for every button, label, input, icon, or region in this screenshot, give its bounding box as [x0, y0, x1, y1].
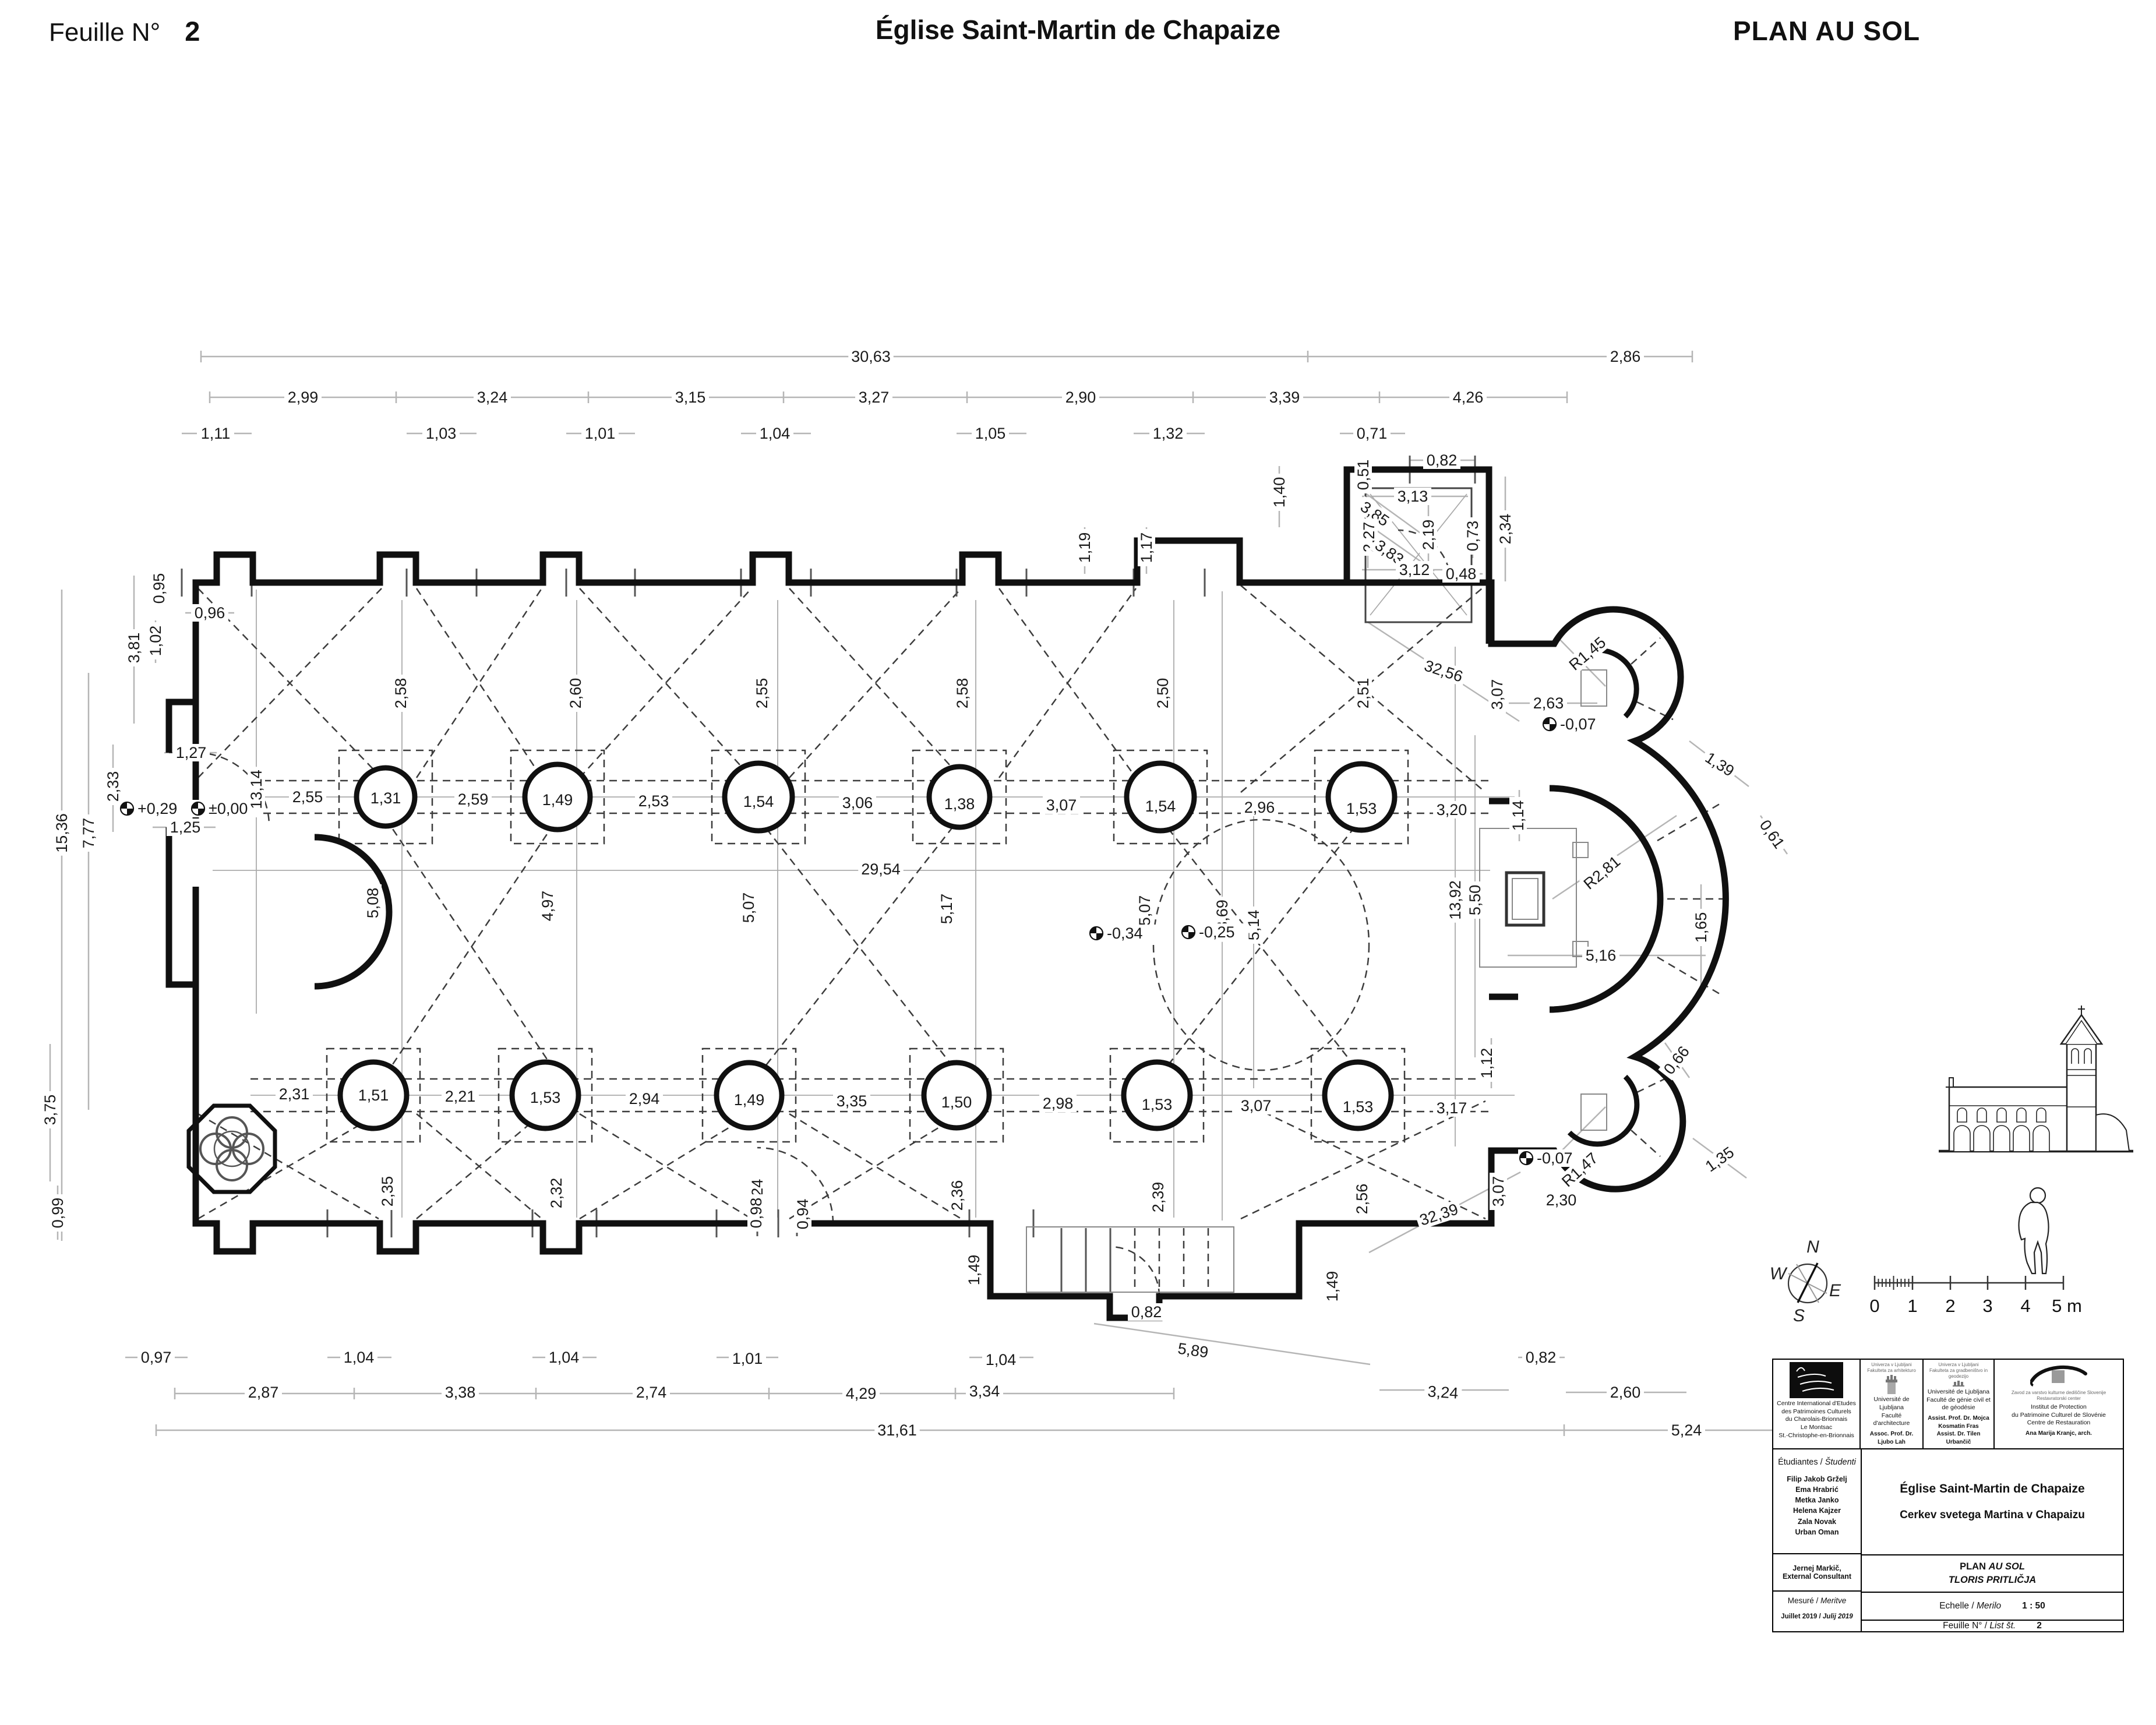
- dimension-label: 3,07: [1488, 676, 1506, 713]
- svg-text:1,04: 1,04: [760, 425, 791, 442]
- title-block: Centre International d'Etudesdes Patrimo…: [1772, 1359, 2124, 1632]
- compass-letter-s: S: [1793, 1306, 1805, 1325]
- scale-label: Echelle / Merilo: [1939, 1601, 2001, 1611]
- dimension-label: 2,58: [392, 675, 410, 712]
- dimension-label: -0,07: [1541, 715, 1610, 733]
- svg-text:1,53: 1,53: [1343, 1098, 1374, 1116]
- title-block-logos-row: Centre International d'Etudesdes Patrimo…: [1773, 1360, 2123, 1449]
- svg-text:-0,07: -0,07: [1537, 1149, 1573, 1167]
- svg-text:2,90: 2,90: [1065, 389, 1096, 406]
- svg-text:3,13: 3,13: [1398, 488, 1428, 505]
- svg-text:3,24: 3,24: [477, 389, 508, 406]
- dimension-label: 4,26: [1449, 389, 1487, 406]
- svg-text:2,58: 2,58: [392, 678, 410, 709]
- dimension-label: 2,30: [1543, 1191, 1580, 1209]
- scalebar-label: 5 m: [2052, 1296, 2082, 1316]
- pier-quatrefoil: [200, 1117, 263, 1180]
- dimension-label: 2,86: [1607, 348, 1644, 365]
- dimension-label: 1,38: [941, 795, 978, 813]
- svg-text:1,14: 1,14: [1509, 800, 1527, 831]
- svg-text:1,12: 1,12: [1478, 1048, 1495, 1079]
- dimension-label: 1,53: [1138, 1096, 1176, 1113]
- svg-text:3,27: 3,27: [859, 389, 890, 406]
- dimension-label: 29,54: [858, 860, 904, 878]
- dimension-label: 1,19: [1076, 529, 1093, 566]
- dimension-label: 2,59: [454, 791, 492, 808]
- svg-text:5,07: 5,07: [1136, 895, 1153, 926]
- dimension-label: 1,49: [731, 1091, 768, 1109]
- dimension-label: 2,19: [1420, 516, 1437, 553]
- sheet-label: Feuille N° / List št.: [1943, 1621, 2016, 1631]
- dimension-label: 0,98: [747, 1194, 765, 1232]
- svg-text:2,30: 2,30: [1546, 1191, 1577, 1209]
- dimension-label: 5,17: [938, 890, 955, 927]
- dimension-label: 1,12: [1478, 1045, 1495, 1082]
- svg-text:5,24: 5,24: [1671, 1421, 1702, 1439]
- dimension-label: 1,49: [539, 791, 576, 809]
- drawing-sheet: Feuille N°2 Église Saint-Martin de Chapa…: [0, 0, 2156, 1725]
- dimension-label: 2,94: [626, 1090, 663, 1107]
- dimension-label: 5,16: [1582, 947, 1619, 964]
- scalebar-label: 0: [1869, 1296, 1879, 1316]
- svg-text:2,96: 2,96: [1244, 799, 1275, 816]
- svg-text:5,08: 5,08: [364, 888, 382, 919]
- svg-text:2,53: 2,53: [638, 792, 669, 810]
- measured-date: Juillet 2019 / Julij 2019: [1773, 1613, 1861, 1620]
- svg-text:31,61: 31,61: [877, 1421, 917, 1439]
- dimension-label: 1,05: [972, 425, 1009, 442]
- dimension-label: 1,11: [197, 425, 234, 442]
- compass-icon: [1788, 1263, 1827, 1303]
- dimension-label: 2,60: [1607, 1384, 1644, 1401]
- dimension-label: 5,24: [1668, 1421, 1705, 1439]
- church-section-drawing: [1939, 1006, 2133, 1151]
- dimension-label: 30,63: [848, 348, 894, 365]
- svg-text:1,11: 1,11: [201, 425, 231, 442]
- svg-text:1,02: 1,02: [147, 626, 164, 657]
- university-tower-icon: [1947, 1380, 1970, 1387]
- sheet-value: 2: [2037, 1621, 2042, 1631]
- dimension-label: 5,07: [740, 889, 757, 926]
- svg-text:1,65: 1,65: [1692, 912, 1710, 943]
- project-title-sl: Cerkev svetega Martina v Chapaizu: [1862, 1509, 2123, 1522]
- dimension-label: 0,51: [1354, 456, 1372, 493]
- svg-text:0,82: 0,82: [1526, 1349, 1557, 1366]
- scalebar-label: 4: [2020, 1296, 2030, 1316]
- dimension-label: 2,35: [379, 1173, 396, 1210]
- svg-text:3,81: 3,81: [125, 633, 143, 664]
- svg-text:1,49: 1,49: [542, 791, 573, 809]
- svg-text:2,50: 2,50: [1154, 678, 1171, 709]
- svg-text:2,74: 2,74: [636, 1384, 667, 1401]
- drawing-title-cell: PLAN AU SOL TLORIS PRITLIČJA: [1862, 1555, 2123, 1593]
- dimension-label: 1,54: [1142, 798, 1179, 815]
- svg-text:5,89: 5,89: [1177, 1339, 1209, 1361]
- dimension-label: 5,89: [1173, 1339, 1213, 1362]
- svg-text:±0,00: ±0,00: [209, 800, 248, 817]
- svg-text:3,07: 3,07: [1490, 1176, 1507, 1207]
- dimension-label: 2,98: [1039, 1095, 1077, 1112]
- dimension-label: 1,04: [982, 1351, 1019, 1368]
- svg-text:1,01: 1,01: [585, 425, 616, 442]
- svg-text:1,40: 1,40: [1271, 477, 1288, 508]
- svg-text:1,53: 1,53: [1142, 1096, 1173, 1113]
- ciep-caption: Centre International d'Etudesdes Patrimo…: [1777, 1400, 1856, 1440]
- dimension-label: 3,17: [1433, 1099, 1470, 1117]
- dimension-label: 1,14: [1509, 797, 1527, 834]
- svg-text:3,07: 3,07: [1488, 679, 1506, 710]
- svg-text:2,56: 2,56: [1353, 1184, 1371, 1215]
- fgg-cell: Univerza v LjubljaniFakulteta za gradben…: [1924, 1360, 1995, 1448]
- svg-text:1,01: 1,01: [732, 1350, 763, 1367]
- svg-text:2,32: 2,32: [548, 1178, 565, 1209]
- zvkds-caption: Institut de Protectiondu Patrimoine Cult…: [2012, 1403, 2106, 1427]
- svg-text:1,54: 1,54: [1145, 798, 1176, 815]
- students-label: Étudiantes / Študenti: [1778, 1458, 1856, 1467]
- students-cell: Étudiantes / Študenti Filip Jakob Grželj…: [1773, 1449, 1861, 1554]
- svg-text:3,06: 3,06: [842, 794, 873, 812]
- svg-text:1,49: 1,49: [734, 1091, 765, 1109]
- svg-text:5,50: 5,50: [1466, 885, 1484, 916]
- dimension-label: 3,20: [1433, 801, 1470, 819]
- svg-text:2,21: 2,21: [445, 1088, 476, 1105]
- dimension-label: 1,53: [527, 1089, 564, 1106]
- project-title-fr: Église Saint-Martin de Chapaize: [1862, 1482, 2123, 1496]
- zvkds-cell: Zavod za varstvo kulturne dediščine Slov…: [1995, 1360, 2123, 1448]
- svg-text:13,14: 13,14: [248, 770, 265, 809]
- svg-text:2,33: 2,33: [104, 771, 122, 802]
- dimension-label: 2,58: [954, 675, 971, 712]
- dimension-label: 2,36: [948, 1177, 966, 1214]
- dimension-label: 3,34: [966, 1382, 1003, 1400]
- dimension-label: 0,71: [1353, 425, 1391, 442]
- dimension-label: 0,97: [137, 1349, 175, 1366]
- svg-text:3,17: 3,17: [1437, 1099, 1467, 1117]
- dimension-label: -0,25: [1180, 923, 1249, 941]
- svg-text:5,17: 5,17: [938, 894, 955, 925]
- dimension-label: 0,82: [1128, 1303, 1165, 1321]
- svg-text:-0,34: -0,34: [1107, 925, 1143, 942]
- sheet-cell: Feuille N° / List št. 2: [1862, 1621, 2123, 1631]
- dimension-label: 0,99: [49, 1194, 66, 1232]
- scale-value: 1 : 50: [2022, 1601, 2045, 1611]
- svg-text:2,60: 2,60: [567, 678, 584, 709]
- dimension-label: 2,21: [442, 1088, 479, 1105]
- svg-text:1,27: 1,27: [176, 744, 207, 761]
- fgg-head: Univerza v LjubljaniFakulteta za gradben…: [1925, 1362, 1992, 1380]
- dimension-label: 15,36: [53, 810, 70, 856]
- dimension-label: 2,53: [635, 792, 672, 810]
- dimension-label: 5,50: [1466, 881, 1484, 919]
- dimension-label: 2,50: [1154, 675, 1171, 712]
- svg-text:2,19: 2,19: [1420, 520, 1437, 551]
- svg-text:2,87: 2,87: [248, 1384, 279, 1401]
- dimension-label: 3,07: [1490, 1173, 1507, 1210]
- dimension-label: 1,54: [740, 793, 777, 810]
- fa-people: Assoc. Prof. Dr. Ljubo Lah: [1862, 1430, 1921, 1446]
- svg-text:15,36: 15,36: [53, 813, 70, 853]
- dimension-label: 32,56: [1420, 656, 1468, 686]
- svg-text:0,73: 0,73: [1464, 521, 1481, 552]
- svg-text:2,35: 2,35: [379, 1176, 396, 1207]
- compass-letter-e: E: [1829, 1281, 1841, 1300]
- svg-text:13,92: 13,92: [1446, 880, 1464, 920]
- dimension-label: 0,82: [1423, 451, 1460, 469]
- dimension-label: 2,33: [104, 768, 122, 805]
- svg-text:1,19: 1,19: [1076, 532, 1093, 563]
- svg-text:0,82: 0,82: [1427, 451, 1458, 469]
- dimension-label: 1,01: [581, 425, 619, 442]
- dimension-label: 1,65: [1692, 909, 1710, 946]
- svg-text:1,49: 1,49: [965, 1255, 983, 1286]
- dimension-label: 2,55: [289, 788, 326, 806]
- dimension-label: 1,01: [729, 1350, 766, 1367]
- dimension-label: 3,24: [474, 389, 511, 406]
- svg-text:1,31: 1,31: [370, 789, 401, 807]
- dimension-label: 3,81: [125, 629, 143, 666]
- svg-text:3,07: 3,07: [1241, 1097, 1272, 1114]
- svg-text:2,58: 2,58: [954, 678, 971, 709]
- ciep-cell: Centre International d'Etudesdes Patrimo…: [1773, 1360, 1861, 1448]
- svg-text:3,20: 3,20: [1437, 801, 1467, 819]
- dimension-label: 3,39: [1266, 389, 1303, 406]
- dimension-label: 1,39: [1699, 747, 1740, 782]
- dimension-labels: 30,632,862,993,243,153,272,903,394,261,1…: [41, 348, 1790, 1439]
- svg-text:2,55: 2,55: [753, 678, 771, 709]
- svg-text:2,51: 2,51: [1354, 678, 1372, 709]
- svg-text:3,07: 3,07: [1046, 796, 1077, 814]
- dimension-label: +0,29: [119, 800, 188, 817]
- dimension-label: 0,61: [1754, 814, 1790, 855]
- human-figure: [2019, 1188, 2049, 1274]
- dimension-label: 0,94: [794, 1195, 811, 1233]
- svg-text:1,50: 1,50: [941, 1093, 972, 1111]
- dimension-label: 0,73: [1464, 517, 1481, 555]
- svg-text:0,82: 0,82: [1131, 1303, 1162, 1321]
- dimension-label: 0,48: [1442, 565, 1480, 583]
- svg-text:+0,29: +0,29: [137, 800, 177, 817]
- scale-cell: Echelle / Merilo 1 : 50: [1862, 1593, 2123, 1621]
- measured-cell: Mesuré / Meritve Juillet 2019 / Julij 20…: [1773, 1592, 1861, 1631]
- dimension-label: 1,17: [1138, 529, 1155, 566]
- svg-text:1,53: 1,53: [530, 1089, 561, 1106]
- dimension-label: 3,12: [1396, 561, 1433, 578]
- dimension-label: 2,55: [753, 675, 771, 712]
- svg-text:0,98: 0,98: [747, 1198, 765, 1229]
- dimension-label: 2,90: [1062, 389, 1099, 406]
- svg-text:29,54: 29,54: [861, 860, 901, 878]
- svg-text:2,94: 2,94: [629, 1090, 660, 1107]
- dimension-label: 3,35: [833, 1092, 870, 1110]
- compass-letter-n: N: [1806, 1237, 1819, 1257]
- svg-text:1,04: 1,04: [986, 1351, 1017, 1368]
- zvkds-head: Zavod za varstvo kulturne dediščine Slov…: [2012, 1390, 2106, 1402]
- students-names: Filip Jakob GrželjEma HrabrićMetka Janko…: [1787, 1474, 1847, 1537]
- dimension-label: 3,07: [1237, 1097, 1275, 1114]
- dimension-label: 0,96: [191, 604, 228, 622]
- dimension-label: 0,82: [1522, 1349, 1559, 1366]
- svg-text:1,51: 1,51: [358, 1086, 389, 1104]
- svg-text:2,39: 2,39: [1149, 1182, 1167, 1213]
- scalebar-label: 2: [1945, 1296, 1955, 1316]
- scale-bar: [1875, 1276, 2063, 1290]
- svg-text:4,97: 4,97: [539, 891, 556, 922]
- dimension-label: 31,61: [874, 1421, 920, 1439]
- svg-text:1,17: 1,17: [1138, 532, 1155, 563]
- svg-text:2,59: 2,59: [458, 791, 489, 808]
- compass-letter-w: W: [1770, 1264, 1788, 1283]
- svg-text:0,95: 0,95: [150, 573, 168, 604]
- dimension-label: 2,74: [633, 1384, 670, 1401]
- svg-text:0,99: 0,99: [49, 1198, 66, 1229]
- svg-text:7,77: 7,77: [80, 818, 97, 849]
- dimension-label: 2,99: [284, 389, 322, 406]
- dimension-label: 3,06: [839, 794, 876, 812]
- svg-text:4,29: 4,29: [846, 1385, 877, 1402]
- dimension-label: 1,02: [147, 622, 164, 659]
- fa-head: Univerza v LjubljaniFakulteta za arhitek…: [1867, 1362, 1916, 1374]
- svg-text:30,63: 30,63: [851, 348, 891, 365]
- svg-text:2,63: 2,63: [1533, 694, 1564, 712]
- dimension-label: 1,04: [340, 1349, 377, 1366]
- dimension-label: 1,04: [756, 425, 793, 442]
- dimension-label: 2,39: [1149, 1179, 1167, 1216]
- svg-text:0,51: 0,51: [1354, 460, 1372, 491]
- svg-text:3,39: 3,39: [1269, 389, 1300, 406]
- dimension-label: 0,95: [150, 570, 168, 607]
- svg-text:0,97: 0,97: [141, 1349, 172, 1366]
- fgg-caption: Université de LjubljanaFaculté de génie …: [1925, 1388, 1992, 1412]
- university-tower-icon: [1880, 1374, 1903, 1394]
- svg-text:3,35: 3,35: [837, 1092, 867, 1110]
- dimension-label: 1,31: [367, 789, 404, 807]
- svg-text:3,75: 3,75: [41, 1095, 59, 1126]
- dimension-label: 1,49: [1324, 1268, 1341, 1305]
- svg-text:1,53: 1,53: [1346, 800, 1377, 817]
- dimension-label: 1,40: [1271, 474, 1288, 511]
- svg-text:5,16: 5,16: [1586, 947, 1617, 964]
- dimension-label: 2,63: [1530, 694, 1567, 712]
- dimension-label: 13,92: [1446, 877, 1464, 923]
- dimension-label: 1,25: [167, 819, 204, 836]
- svg-text:R2,81: R2,81: [1580, 852, 1624, 893]
- svg-text:3,24: 3,24: [1427, 1382, 1459, 1402]
- dimension-label: 2,87: [245, 1384, 282, 1401]
- dimension-label: 3,13: [1394, 488, 1431, 505]
- svg-text:1,32: 1,32: [1153, 425, 1184, 442]
- dimension-label: 3,27: [855, 389, 892, 406]
- svg-text:1,54: 1,54: [743, 793, 774, 810]
- svg-text:0,71: 0,71: [1357, 425, 1388, 442]
- svg-text:4,26: 4,26: [1453, 389, 1484, 406]
- svg-text:2,31: 2,31: [279, 1085, 310, 1103]
- svg-text:2,55: 2,55: [292, 788, 323, 806]
- dimension-label: 3,24: [1424, 1382, 1462, 1402]
- dimension-label: 1,32: [1149, 425, 1187, 442]
- dimension-label: 2,56: [1353, 1180, 1371, 1218]
- dimension-label: 1,53: [1343, 800, 1380, 817]
- dimension-label: 1,03: [422, 425, 460, 442]
- svg-text:3,38: 3,38: [445, 1384, 476, 1401]
- dimension-label: 3,75: [41, 1091, 59, 1128]
- svg-text:3,15: 3,15: [675, 389, 706, 406]
- svg-text:-0,07: -0,07: [1560, 715, 1596, 733]
- dimension-label: 4,29: [842, 1385, 880, 1402]
- dimension-label: 3,15: [672, 389, 709, 406]
- svg-text:2,99: 2,99: [288, 389, 319, 406]
- dimension-label: 1,50: [938, 1093, 975, 1111]
- measured-label: Mesuré / Meritve: [1773, 1596, 1861, 1605]
- svg-text:32,56: 32,56: [1422, 657, 1465, 685]
- svg-text:1,04: 1,04: [344, 1349, 375, 1366]
- svg-text:0,48: 0,48: [1446, 565, 1477, 583]
- scalebar-label: 3: [1982, 1296, 1992, 1316]
- svg-text:1,25: 1,25: [170, 819, 201, 836]
- svg-text:2,86: 2,86: [1610, 348, 1641, 365]
- fa-caption: Université de LjubljanaFaculté d'archite…: [1862, 1396, 1921, 1428]
- dimension-label: 1,49: [965, 1251, 983, 1289]
- dimension-label: 4,97: [539, 887, 556, 925]
- fa-cell: Univerza v LjubljaniFakulteta za arhitek…: [1861, 1360, 1924, 1448]
- svg-text:2,98: 2,98: [1043, 1095, 1074, 1112]
- svg-text:1,04: 1,04: [549, 1349, 580, 1366]
- scalebar-label: 1: [1907, 1296, 1917, 1316]
- dimension-label: 5,07: [1136, 892, 1153, 929]
- dimension-label: 7,77: [80, 814, 97, 852]
- dimension-label: -0,34: [1088, 925, 1157, 942]
- dimension-label: 2,96: [1241, 799, 1278, 816]
- dimension-label: 3,07: [1043, 796, 1080, 814]
- dimension-label: 2,32: [548, 1174, 565, 1212]
- dimension-label: 2,60: [567, 675, 584, 712]
- dimension-label: 1,53: [1339, 1098, 1377, 1116]
- dimension-label: 2,51: [1354, 675, 1372, 712]
- dimension-label: 1,51: [355, 1086, 392, 1104]
- svg-text:3,12: 3,12: [1399, 561, 1430, 578]
- svg-text:1,03: 1,03: [426, 425, 457, 442]
- dimension-label: 2,34: [1497, 510, 1514, 548]
- svg-text:1,05: 1,05: [975, 425, 1006, 442]
- dimension-label: 2,31: [276, 1085, 313, 1103]
- dimension-label: 1,27: [172, 744, 210, 761]
- svg-text:5,07: 5,07: [740, 893, 757, 923]
- dimension-label: 3,38: [442, 1384, 479, 1401]
- svg-text:2,36: 2,36: [948, 1180, 966, 1211]
- svg-text:2,60: 2,60: [1610, 1384, 1641, 1401]
- ciep-logo: [1790, 1362, 1843, 1398]
- fgg-people: Assist. Prof. Dr. Mojca Kosmatin FrasAss…: [1925, 1414, 1992, 1446]
- svg-text:0,96: 0,96: [195, 604, 225, 622]
- zvkds-people: Ana Marija Kranjc, arch.: [2026, 1430, 2092, 1438]
- svg-text:-0,25: -0,25: [1199, 923, 1235, 941]
- dimension-label: 5,08: [364, 884, 382, 922]
- svg-text:1,38: 1,38: [944, 795, 975, 813]
- project-title-cell: Église Saint-Martin de Chapaize Cerkev s…: [1862, 1449, 2123, 1555]
- dimension-label: 13,14: [248, 767, 265, 812]
- zvkds-logo: [2024, 1362, 2094, 1390]
- consultant-cell: Jernej Markič,External Consultant: [1773, 1554, 1861, 1592]
- svg-text:2,34: 2,34: [1497, 514, 1514, 545]
- dimension-label: 1,04: [545, 1349, 583, 1366]
- svg-text:3,34: 3,34: [969, 1382, 1000, 1400]
- svg-text:1,49: 1,49: [1324, 1271, 1341, 1302]
- svg-text:0,94: 0,94: [794, 1199, 811, 1230]
